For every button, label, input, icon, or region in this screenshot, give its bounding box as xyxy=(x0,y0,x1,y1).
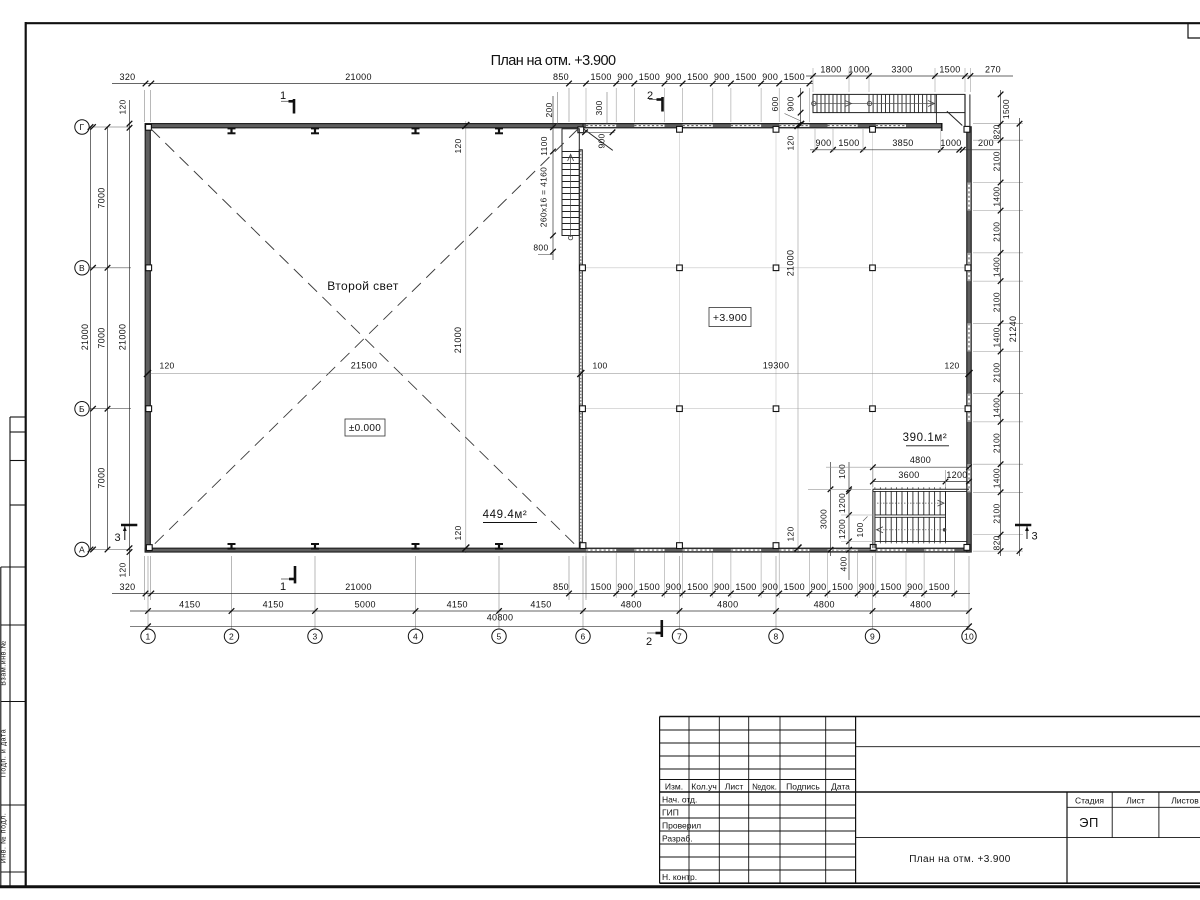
svg-text:1500: 1500 xyxy=(639,72,660,82)
svg-text:2: 2 xyxy=(646,636,652,648)
svg-text:1200: 1200 xyxy=(946,470,967,480)
svg-text:Разраб.: Разраб. xyxy=(662,833,693,843)
svg-text:100: 100 xyxy=(855,522,865,537)
svg-text:2: 2 xyxy=(647,90,653,102)
svg-text:900: 900 xyxy=(714,582,730,592)
svg-text:270: 270 xyxy=(985,65,1001,75)
svg-text:1500: 1500 xyxy=(735,582,756,592)
svg-text:320: 320 xyxy=(120,72,136,82)
svg-text:3: 3 xyxy=(114,532,120,544)
svg-text:1500: 1500 xyxy=(939,65,960,75)
svg-text:1500: 1500 xyxy=(687,72,708,82)
svg-text:900: 900 xyxy=(786,96,796,111)
svg-text:4800: 4800 xyxy=(814,600,835,610)
svg-text:1500: 1500 xyxy=(880,582,901,592)
svg-text:600: 600 xyxy=(770,96,780,111)
svg-text:21000: 21000 xyxy=(345,72,372,82)
svg-text:21500: 21500 xyxy=(351,361,378,371)
svg-text:300: 300 xyxy=(594,100,604,115)
svg-text:21000: 21000 xyxy=(786,250,796,277)
svg-text:1500: 1500 xyxy=(590,72,611,82)
svg-text:1500: 1500 xyxy=(784,582,805,592)
svg-text:1000: 1000 xyxy=(848,65,869,75)
svg-text:120: 120 xyxy=(159,361,174,371)
svg-text:+3.900: +3.900 xyxy=(713,312,747,324)
svg-text:1: 1 xyxy=(280,90,286,102)
svg-text:5: 5 xyxy=(496,631,501,641)
svg-text:900: 900 xyxy=(666,72,682,82)
svg-text:390.1м²: 390.1м² xyxy=(903,432,948,444)
svg-text:3850: 3850 xyxy=(892,138,913,148)
svg-text:1500: 1500 xyxy=(687,582,708,592)
svg-text:9: 9 xyxy=(870,631,875,641)
svg-text:7000: 7000 xyxy=(97,187,107,208)
svg-text:Н. контр.: Н. контр. xyxy=(662,872,697,882)
svg-text:3000: 3000 xyxy=(819,509,829,529)
svg-text:Проверил: Проверил xyxy=(662,820,701,830)
svg-text:120: 120 xyxy=(786,135,796,150)
svg-text:7000: 7000 xyxy=(97,327,107,348)
svg-text:2: 2 xyxy=(229,631,234,641)
svg-text:21000: 21000 xyxy=(345,582,372,592)
svg-text:Подп. и дата: Подп. и дата xyxy=(1,729,8,777)
svg-text:8: 8 xyxy=(773,631,778,641)
svg-text:19300: 19300 xyxy=(763,361,790,371)
svg-text:21000: 21000 xyxy=(80,324,90,351)
svg-text:±0.000: ±0.000 xyxy=(349,423,381,434)
svg-text:4150: 4150 xyxy=(530,600,551,610)
svg-text:1400: 1400 xyxy=(992,327,1002,347)
svg-text:А: А xyxy=(79,545,85,555)
svg-text:100: 100 xyxy=(837,464,847,479)
svg-text:1: 1 xyxy=(280,581,286,593)
svg-text:120: 120 xyxy=(453,525,463,540)
svg-text:1500: 1500 xyxy=(832,582,853,592)
svg-text:1400: 1400 xyxy=(992,468,1002,488)
svg-text:200: 200 xyxy=(544,102,554,117)
svg-text:Лист: Лист xyxy=(1126,796,1145,806)
svg-text:4150: 4150 xyxy=(263,600,284,610)
svg-text:Лист: Лист xyxy=(725,781,744,791)
svg-text:900: 900 xyxy=(714,72,730,82)
svg-text:4800: 4800 xyxy=(717,600,738,610)
svg-text:900: 900 xyxy=(811,582,827,592)
svg-text:260x16 = 4160: 260x16 = 4160 xyxy=(539,167,549,227)
svg-text:900: 900 xyxy=(907,582,923,592)
svg-text:900: 900 xyxy=(597,133,607,148)
svg-text:120: 120 xyxy=(786,526,796,541)
svg-text:800: 800 xyxy=(533,243,548,253)
svg-text:1500: 1500 xyxy=(838,138,859,148)
svg-text:900: 900 xyxy=(617,582,633,592)
svg-text:6: 6 xyxy=(580,631,585,641)
svg-text:В: В xyxy=(79,263,85,273)
svg-text:320: 320 xyxy=(120,582,136,592)
svg-text:1: 1 xyxy=(145,631,150,641)
svg-text:850: 850 xyxy=(553,72,569,82)
svg-text:1400: 1400 xyxy=(992,257,1002,277)
svg-text:1500: 1500 xyxy=(929,582,950,592)
svg-text:900: 900 xyxy=(816,138,832,148)
svg-text:1000: 1000 xyxy=(940,138,961,148)
svg-text:Подпись: Подпись xyxy=(786,781,820,791)
svg-text:4800: 4800 xyxy=(621,600,642,610)
svg-text:Дата: Дата xyxy=(831,781,850,791)
svg-text:120: 120 xyxy=(944,361,959,371)
svg-text:1200: 1200 xyxy=(837,519,847,539)
svg-text:2100: 2100 xyxy=(992,222,1002,242)
svg-text:1400: 1400 xyxy=(992,398,1002,418)
svg-text:4: 4 xyxy=(413,631,418,641)
svg-text:Изм.: Изм. xyxy=(665,781,683,791)
svg-text:21240: 21240 xyxy=(1008,316,1018,343)
svg-text:№док.: №док. xyxy=(752,781,777,791)
svg-text:3300: 3300 xyxy=(891,65,912,75)
svg-text:Кол.уч: Кол.уч xyxy=(691,781,717,791)
svg-text:Взам.инв.№: Взам.инв.№ xyxy=(1,640,8,685)
svg-text:900: 900 xyxy=(617,72,633,82)
svg-text:820: 820 xyxy=(992,124,1002,139)
svg-text:2100: 2100 xyxy=(992,151,1002,171)
svg-text:3600: 3600 xyxy=(898,470,919,480)
svg-text:4150: 4150 xyxy=(447,600,468,610)
svg-text:120: 120 xyxy=(118,99,128,114)
svg-text:1500: 1500 xyxy=(735,72,756,82)
svg-text:7000: 7000 xyxy=(97,467,107,488)
svg-text:4800: 4800 xyxy=(910,600,931,610)
svg-text:1200: 1200 xyxy=(837,493,847,513)
svg-text:1500: 1500 xyxy=(784,72,805,82)
svg-text:3: 3 xyxy=(312,631,317,641)
svg-text:ГИП: ГИП xyxy=(662,807,679,817)
svg-text:Г: Г xyxy=(80,122,85,132)
svg-text:5000: 5000 xyxy=(355,600,376,610)
svg-text:900: 900 xyxy=(762,72,778,82)
svg-text:4800: 4800 xyxy=(910,455,931,465)
svg-text:1400: 1400 xyxy=(992,187,1002,207)
svg-text:Б: Б xyxy=(79,404,85,414)
svg-text:Стадия: Стадия xyxy=(1075,796,1104,806)
svg-text:4150: 4150 xyxy=(179,600,200,610)
svg-text:Второй свет: Второй свет xyxy=(327,279,399,293)
svg-text:40800: 40800 xyxy=(487,613,514,623)
svg-text:449.4м²: 449.4м² xyxy=(483,509,528,521)
svg-text:2100: 2100 xyxy=(992,503,1002,523)
svg-text:900: 900 xyxy=(762,582,778,592)
svg-text:1800: 1800 xyxy=(820,65,841,75)
svg-text:7: 7 xyxy=(677,631,682,641)
svg-text:3: 3 xyxy=(1031,531,1037,543)
svg-text:Инв. № подл.: Инв. № подл. xyxy=(1,813,8,864)
svg-text:Нач. отд.: Нач. отд. xyxy=(662,794,697,804)
svg-text:ЭП: ЭП xyxy=(1079,815,1099,830)
svg-text:2100: 2100 xyxy=(992,433,1002,453)
svg-text:План на отм. +3.900: План на отм. +3.900 xyxy=(491,53,616,69)
svg-text:400: 400 xyxy=(839,556,849,571)
svg-text:21000: 21000 xyxy=(118,324,128,351)
svg-text:10: 10 xyxy=(964,631,974,641)
svg-text:120: 120 xyxy=(453,138,463,153)
svg-text:Листов: Листов xyxy=(1171,796,1199,806)
svg-text:100: 100 xyxy=(592,361,607,371)
svg-text:План на отм. +3.900: План на отм. +3.900 xyxy=(909,854,1011,865)
svg-text:1500: 1500 xyxy=(590,582,611,592)
svg-text:1100: 1100 xyxy=(539,136,549,155)
svg-text:850: 850 xyxy=(553,582,569,592)
svg-text:1500: 1500 xyxy=(1001,99,1011,119)
svg-text:2100: 2100 xyxy=(992,363,1002,383)
svg-text:120: 120 xyxy=(118,562,128,577)
svg-text:2100: 2100 xyxy=(992,292,1002,312)
svg-text:820: 820 xyxy=(992,535,1002,550)
svg-text:21000: 21000 xyxy=(453,327,463,354)
svg-text:900: 900 xyxy=(859,582,875,592)
svg-text:1500: 1500 xyxy=(639,582,660,592)
svg-text:900: 900 xyxy=(666,582,682,592)
